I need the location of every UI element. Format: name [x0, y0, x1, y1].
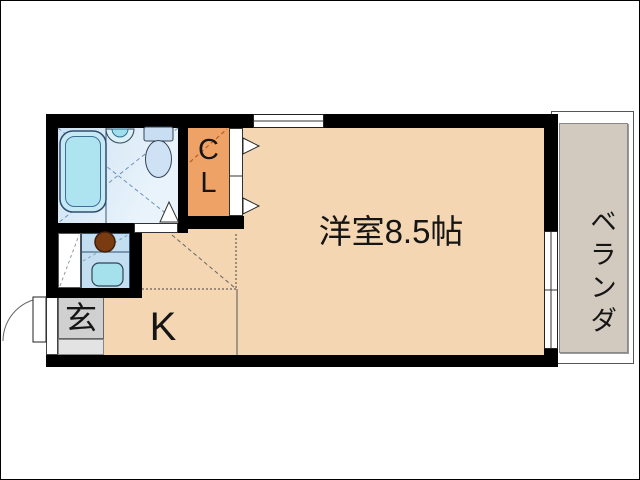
bath-door-marker: [160, 202, 179, 222]
stove-burner: [95, 232, 115, 252]
toilet-bowl: [146, 141, 172, 178]
laundry-dash: [60, 235, 79, 286]
closet-door-arrow-bottom: [243, 198, 259, 214]
entrance-label: 玄: [58, 300, 104, 336]
bathtub-inner: [66, 137, 101, 207]
veranda-label: ベランダ: [582, 198, 621, 348]
entrance-door-leaf: [33, 297, 46, 342]
main-room-label: 洋室8.5帖: [300, 213, 482, 251]
closet-label: C L: [188, 134, 229, 200]
toilet-tank: [144, 127, 173, 141]
kitchen-door-swing-dash: [172, 235, 235, 288]
kitchen-sink: [92, 263, 123, 286]
closet-door-arrow-top: [243, 138, 259, 154]
floorplan: 洋室8.5帖 K 玄 C L ベランダ: [0, 0, 640, 480]
closet-letter-c: C: [188, 134, 229, 167]
closet-letter-l: L: [188, 167, 229, 200]
kitchen-label: K: [139, 305, 187, 349]
